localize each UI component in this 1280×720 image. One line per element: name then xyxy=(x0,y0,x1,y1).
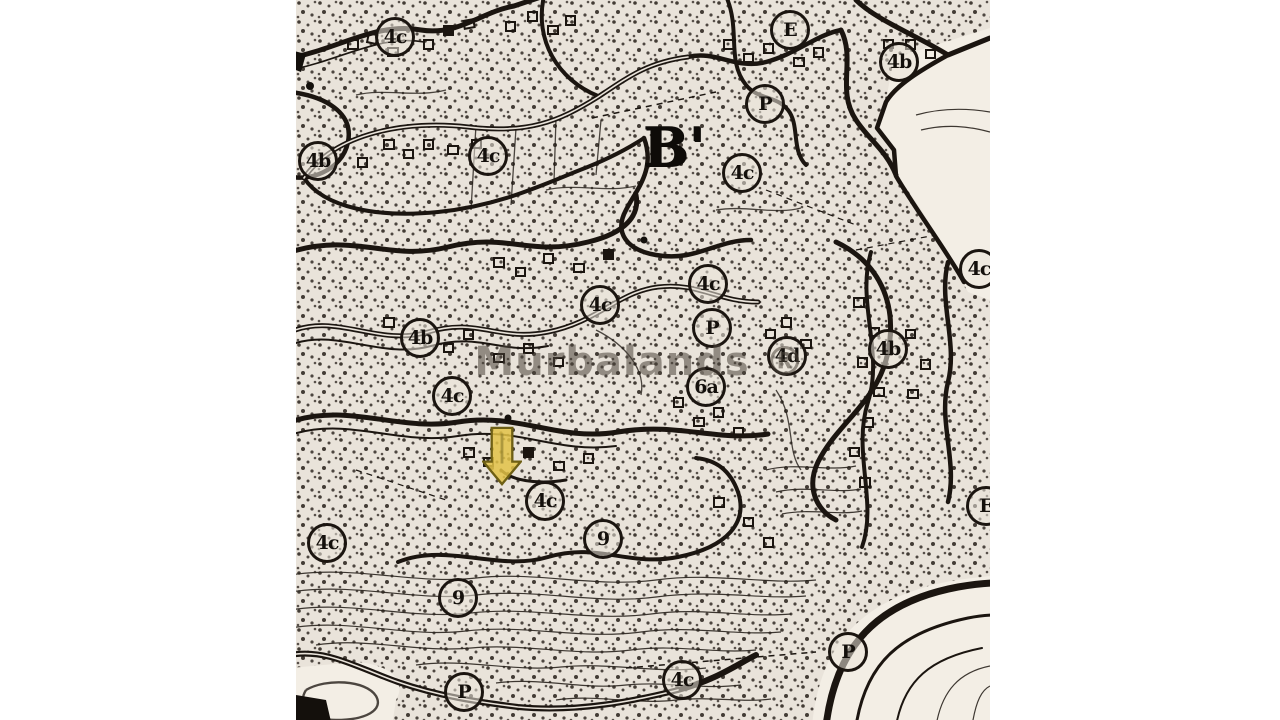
zone-label-4c: 4c xyxy=(307,523,347,563)
scanned-zoning-map: 4c4c4bE4bP4c4c4c4b4cP4d6a4b4c4c4c99PPE4c… xyxy=(296,0,990,720)
zone-label-4c: 4c xyxy=(722,153,762,193)
zone-label-p: P xyxy=(444,672,484,712)
section-label-b-prime: B' xyxy=(643,115,705,179)
zone-label-4c: 4c xyxy=(688,264,728,304)
zone-label-4b: 4b xyxy=(879,42,919,82)
watermark-text: Murbalands ® xyxy=(474,339,805,385)
zone-label-p: P xyxy=(828,632,868,672)
zone-label-4c: 4c xyxy=(375,17,415,57)
zone-label-4c: 4c xyxy=(525,481,565,521)
zone-label-4c: 4c xyxy=(580,285,620,325)
zone-label-4b: 4b xyxy=(400,318,440,358)
zone-label-4c: 4c xyxy=(662,660,702,700)
zone-label-4b: 4b xyxy=(298,141,338,181)
location-arrow-icon xyxy=(482,426,522,486)
zone-label-9: 9 xyxy=(583,519,623,559)
zone-label-p: P xyxy=(745,84,785,124)
zone-label-4c: 4c xyxy=(432,376,472,416)
zone-label-4c: 4c xyxy=(468,136,508,176)
zone-label-e: E xyxy=(770,10,810,50)
zone-label-4b: 4b xyxy=(868,329,908,369)
zone-label-9: 9 xyxy=(438,578,478,618)
screenshot-canvas: 4c4c4bE4bP4c4c4c4b4cP4d6a4b4c4c4c99PPE4c… xyxy=(0,0,1280,720)
